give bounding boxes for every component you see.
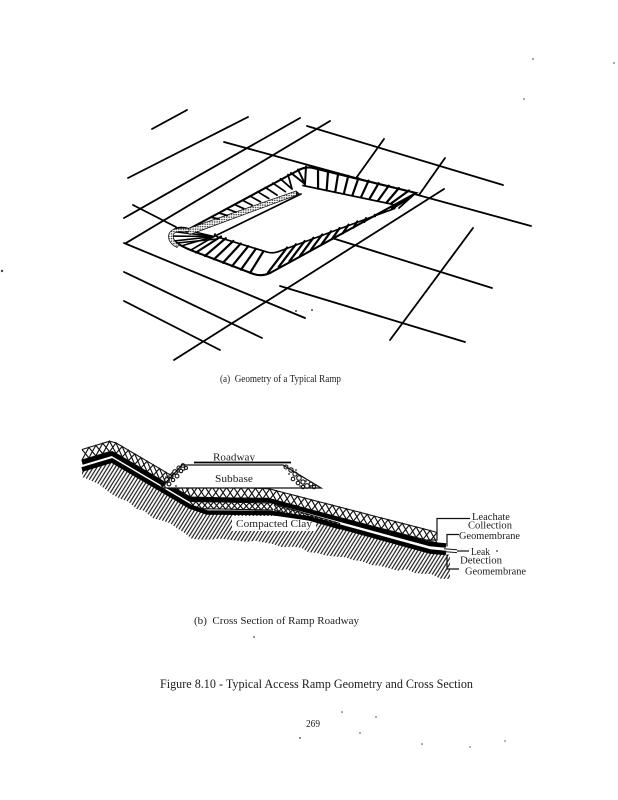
svg-text:Detection: Detection xyxy=(460,556,502,567)
svg-text:(b) Cross Section of Ramp Roa: (b) Cross Section of Ramp Roadway xyxy=(194,615,359,627)
svg-text:Collection: Collection xyxy=(468,521,512,532)
svg-text:Roadway: Roadway xyxy=(213,452,256,464)
svg-text:Geomembrane: Geomembrane xyxy=(465,567,527,578)
svg-text:(a) Geometry of a Typical Ram: (a) Geometry of a Typical Ramp xyxy=(220,374,341,385)
svg-text:Compacted Clay: Compacted Clay xyxy=(236,518,313,530)
svg-text:269: 269 xyxy=(306,719,320,730)
svg-text:Subbase: Subbase xyxy=(215,473,253,485)
svg-text:Geomembrane: Geomembrane xyxy=(459,531,521,542)
svg-text:Figure 8.10 - Typical Access R: Figure 8.10 - Typical Access Ramp Geomet… xyxy=(160,677,473,691)
